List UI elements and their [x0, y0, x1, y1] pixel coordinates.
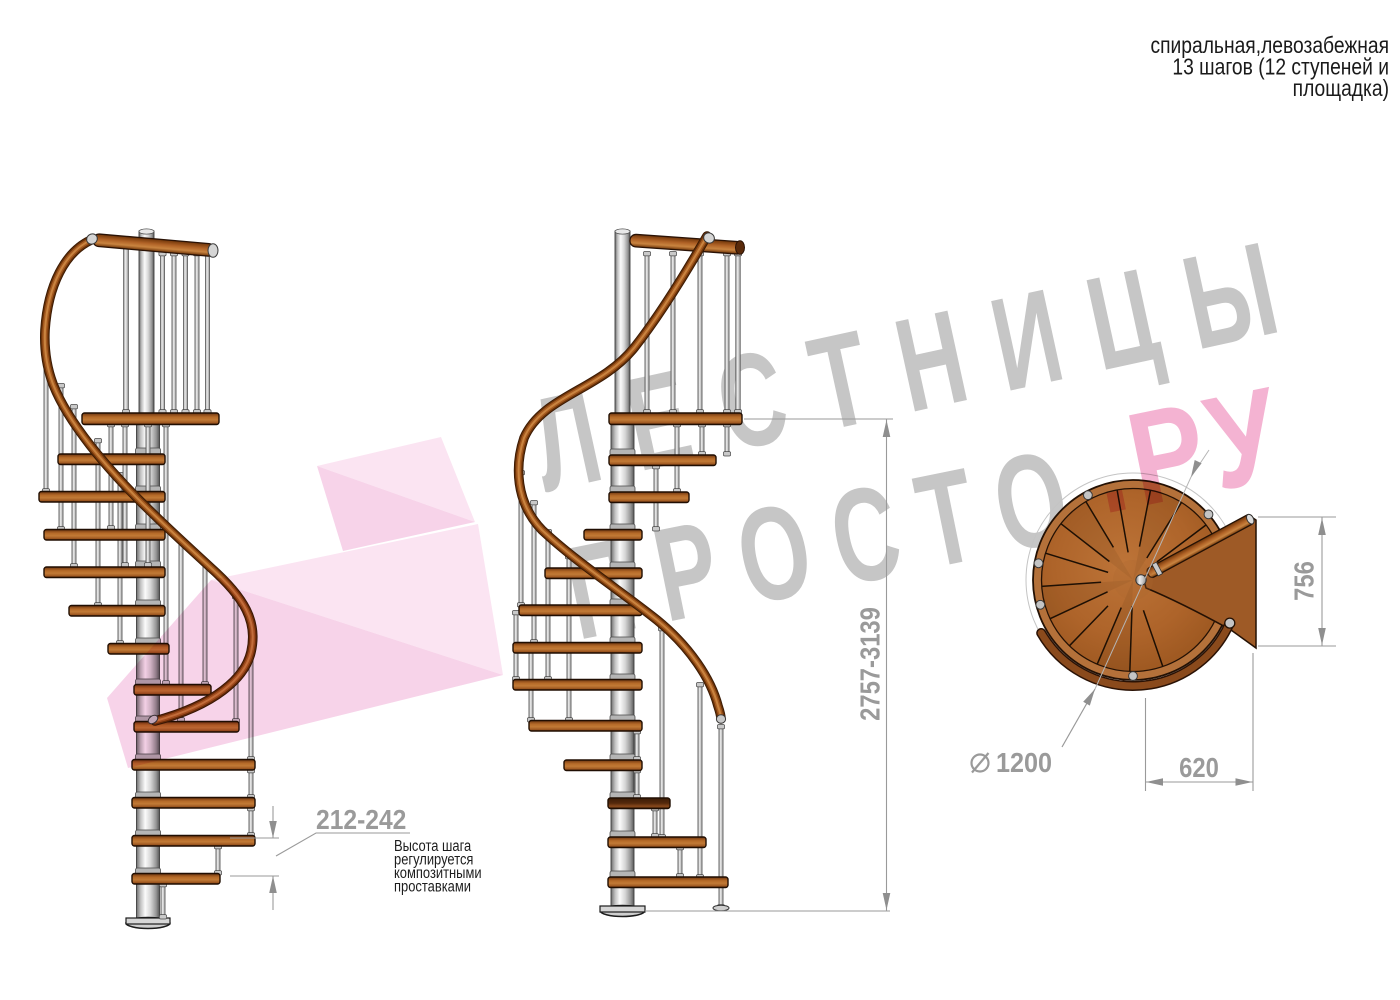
svg-text:620: 620 [1179, 751, 1219, 783]
svg-text:площадка): площадка) [1293, 75, 1389, 101]
svg-text:2757-3139: 2757-3139 [854, 607, 886, 721]
svg-text:756: 756 [1288, 561, 1320, 601]
svg-text:212-242: 212-242 [316, 804, 406, 836]
svg-text:проставками: проставками [394, 879, 471, 896]
svg-text:1200: 1200 [996, 747, 1052, 779]
